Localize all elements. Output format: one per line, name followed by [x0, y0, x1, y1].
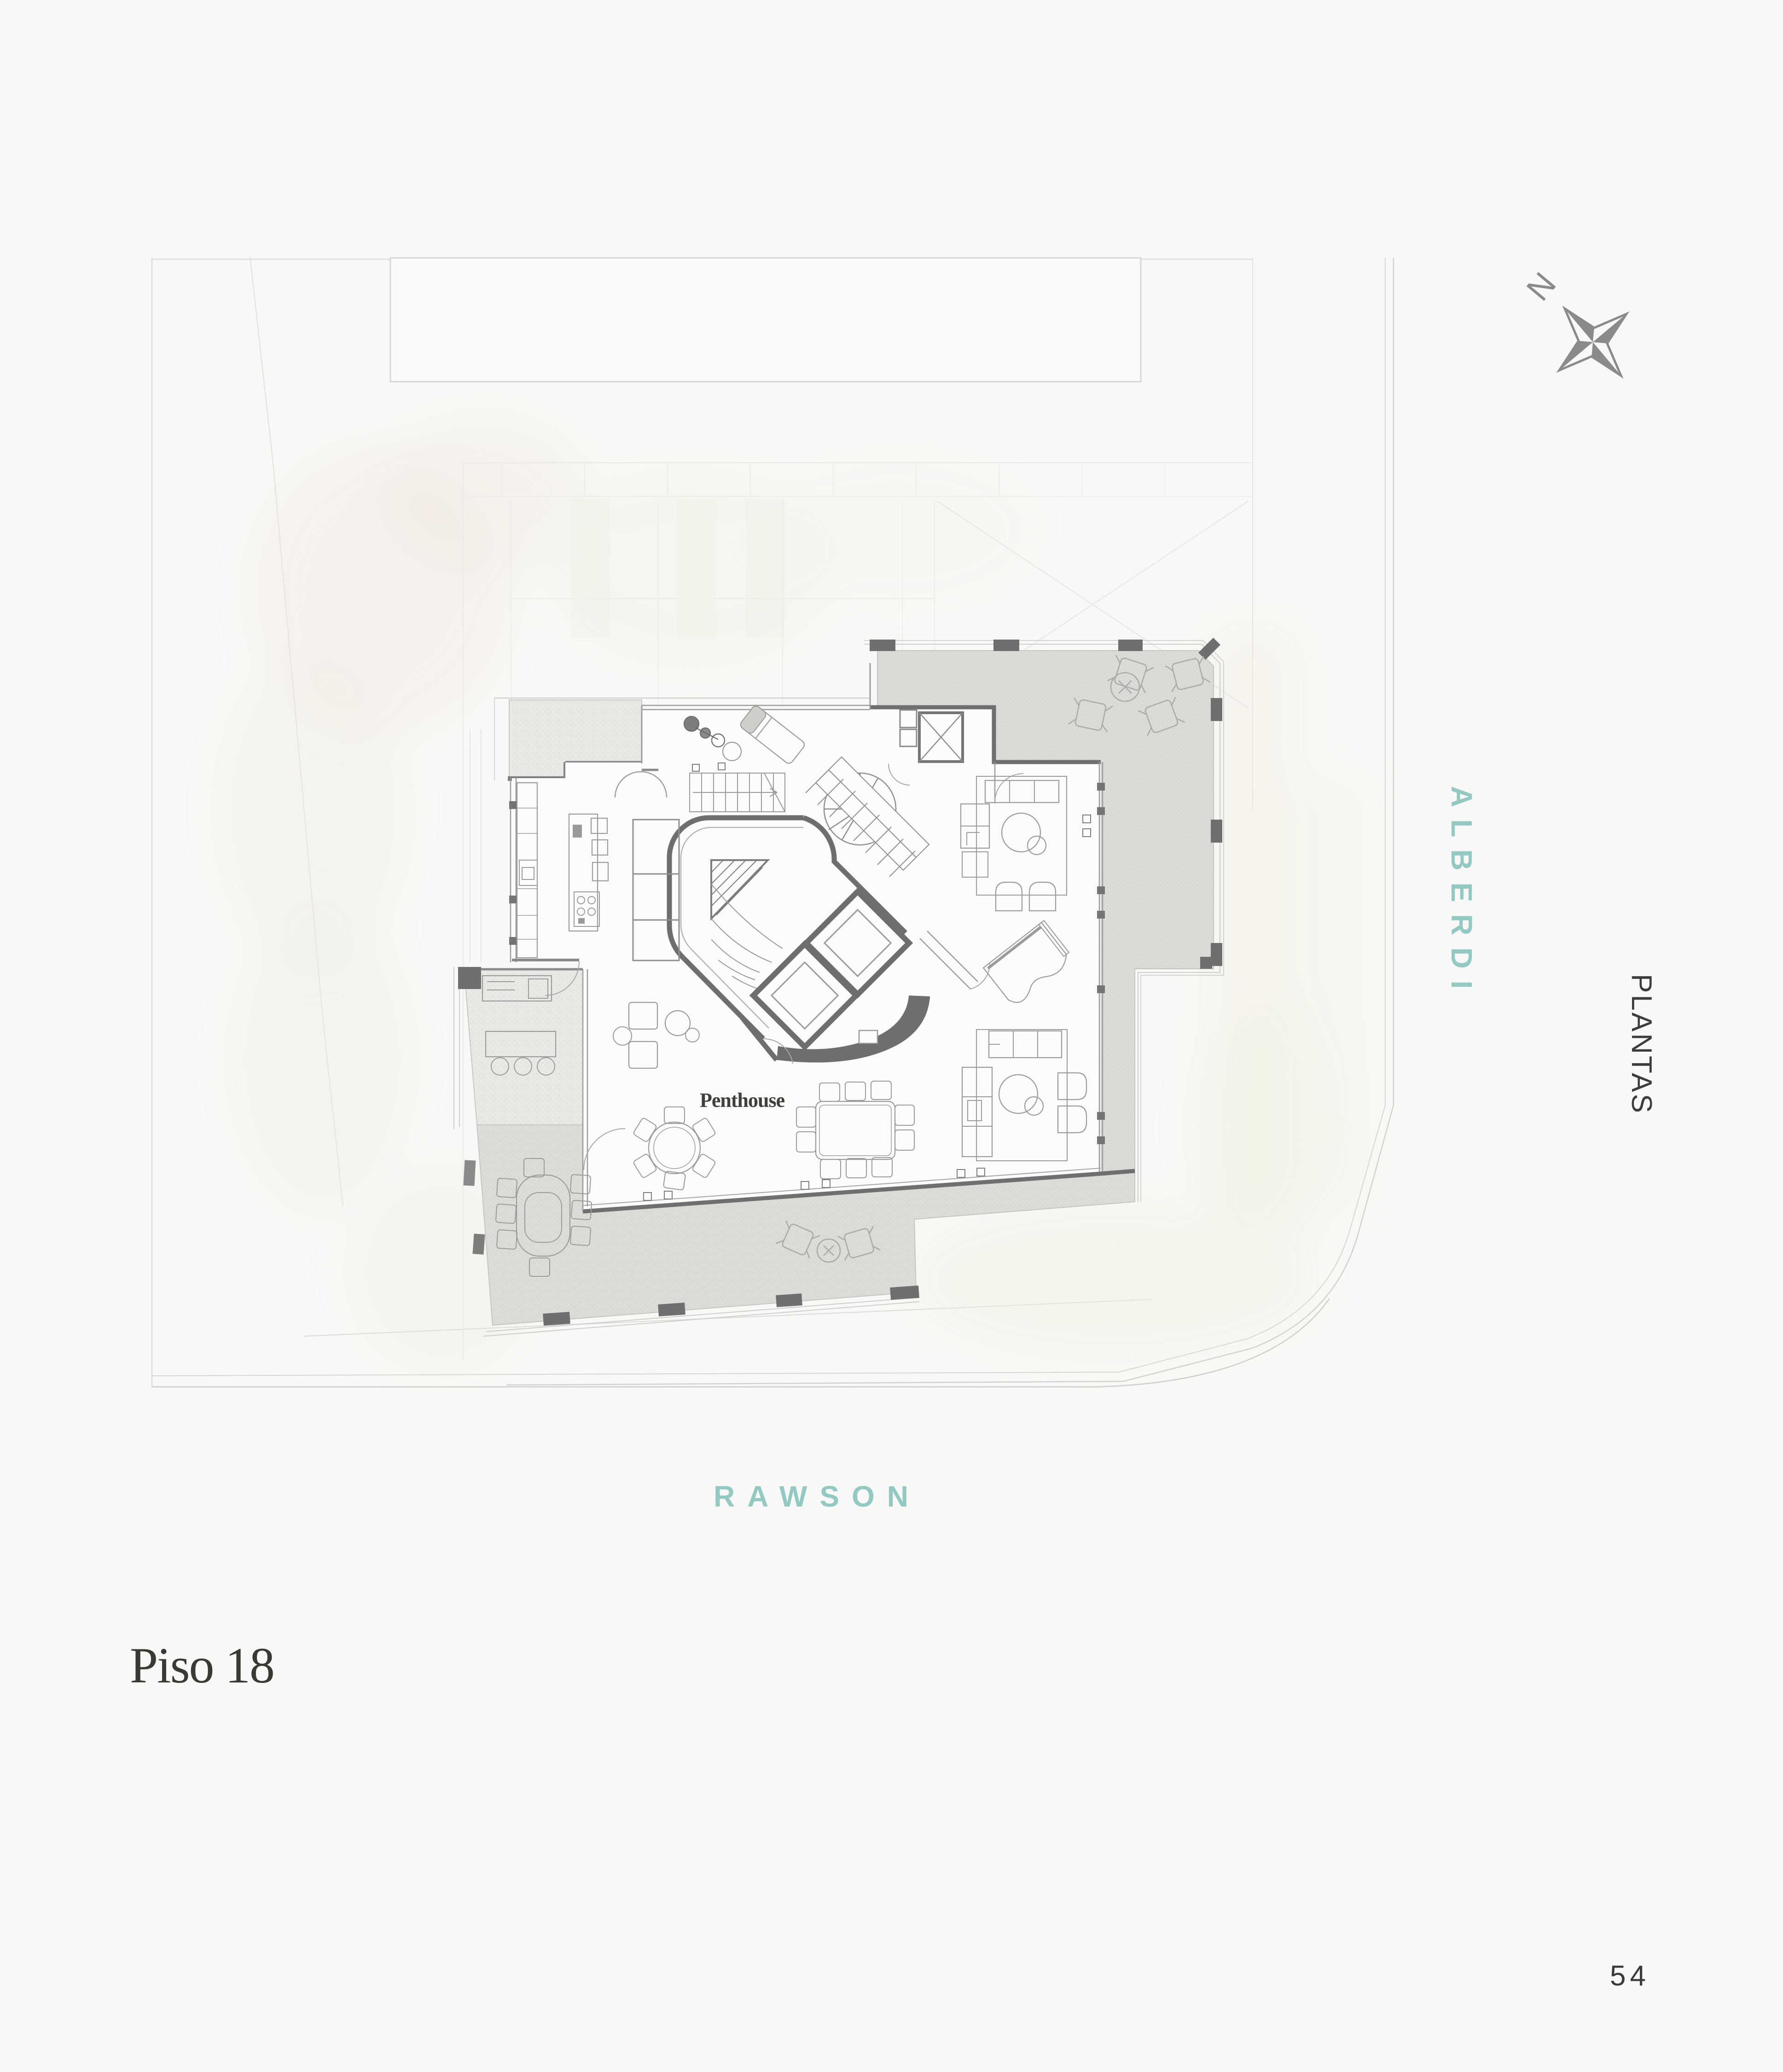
svg-text:RAWSON: RAWSON — [714, 1480, 921, 1513]
svg-text:54: 54 — [1610, 1960, 1650, 1992]
svg-text:Penthouse: Penthouse — [700, 1089, 785, 1112]
svg-text:ALBERDI: ALBERDI — [1445, 786, 1478, 1001]
svg-text:Piso 18: Piso 18 — [130, 1637, 274, 1694]
svg-text:PLANTAS: PLANTAS — [1626, 974, 1657, 1115]
